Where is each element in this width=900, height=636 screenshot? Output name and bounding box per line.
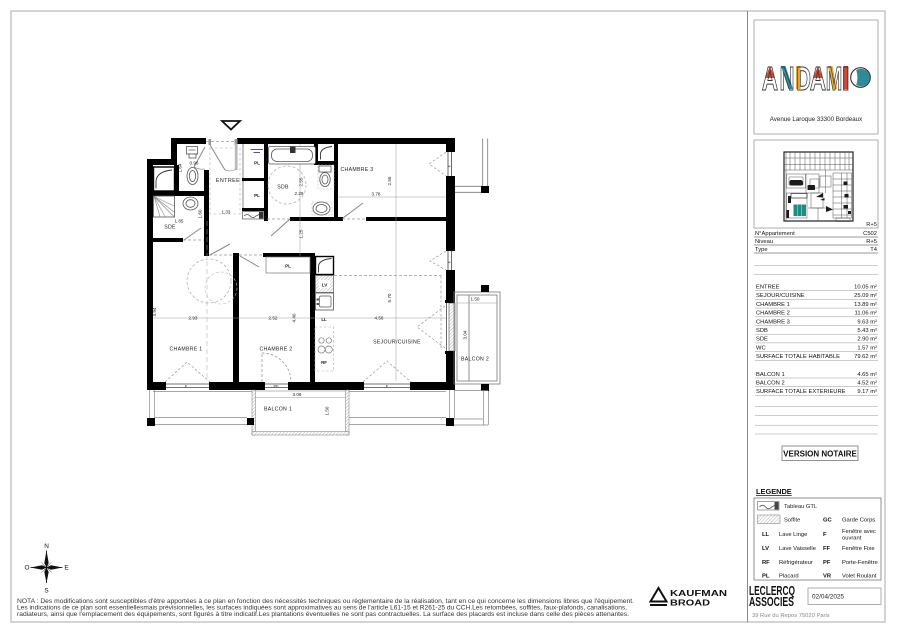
- svg-text:Fenêtre Fixe: Fenêtre Fixe: [842, 546, 875, 552]
- svg-text:CHAMBRE 1: CHAMBRE 1: [170, 347, 203, 353]
- svg-text:CHAMBRE 3: CHAMBRE 3: [341, 167, 374, 173]
- svg-text:LV: LV: [762, 546, 769, 552]
- svg-text:Porte-Fenêtre: Porte-Fenêtre: [842, 560, 878, 566]
- svg-text:02/04/2025: 02/04/2025: [812, 594, 844, 601]
- svg-text:4.94: 4.94: [152, 307, 157, 316]
- svg-text:SDB: SDB: [277, 185, 289, 191]
- svg-text:ENTREE: ENTREE: [216, 178, 240, 184]
- svg-text:BALCON 2: BALCON 2: [756, 381, 785, 387]
- svg-text:A: A: [810, 60, 826, 97]
- svg-text:RF: RF: [321, 360, 327, 365]
- svg-text:4.40: 4.40: [292, 313, 297, 322]
- svg-text:LL: LL: [321, 317, 327, 322]
- svg-text:CHAMBRE 2: CHAMBRE 2: [756, 311, 790, 317]
- svg-text:M: M: [826, 60, 842, 98]
- svg-text:Lave Vaisselle: Lave Vaisselle: [779, 546, 816, 552]
- svg-text:BALCON 2: BALCON 2: [461, 357, 489, 363]
- svg-text:radiateurs, ainsi que l'emplac: radiateurs, ainsi que l'emplacement des …: [17, 612, 629, 618]
- svg-text:R+5: R+5: [866, 222, 877, 228]
- svg-text:ASSOCIES: ASSOCIES: [749, 595, 794, 609]
- svg-text:CHAMBRE 3: CHAMBRE 3: [756, 319, 790, 325]
- svg-text:WC: WC: [756, 345, 766, 351]
- svg-text:Réfrigérateur: Réfrigérateur: [779, 560, 813, 566]
- svg-text:VERSION NOTAIRE: VERSION NOTAIRE: [783, 450, 857, 459]
- svg-text:T4: T4: [870, 247, 878, 253]
- svg-text:9.17 m²: 9.17 m²: [857, 389, 877, 395]
- svg-text:PF: PF: [823, 560, 831, 566]
- svg-text:Niveau: Niveau: [755, 239, 773, 245]
- svg-text:1.85: 1.85: [175, 219, 184, 224]
- svg-text:0.96: 0.96: [190, 161, 199, 166]
- svg-text:N°Appartement: N°Appartement: [755, 231, 795, 237]
- svg-text:25.09 m²: 25.09 m²: [854, 293, 877, 299]
- svg-text:Les indications de ce plan son: Les indications de ce plan sont essentie…: [17, 606, 627, 612]
- svg-text:Garde Corps: Garde Corps: [842, 518, 875, 524]
- svg-text:SDB: SDB: [756, 328, 768, 334]
- svg-text:Avenue Laroque 33300 Bordeaux: Avenue Laroque 33300 Bordeaux: [770, 116, 863, 123]
- svg-text:2.55: 2.55: [299, 177, 304, 186]
- svg-text:BALCON 1: BALCON 1: [264, 407, 292, 413]
- svg-text:13.89 m²: 13.89 m²: [854, 302, 877, 308]
- svg-text:SURFACE TOTALE EXTERIEURE: SURFACE TOTALE EXTERIEURE: [756, 389, 846, 395]
- svg-text:BROAD: BROAD: [670, 598, 710, 608]
- svg-text:CHAMBRE 1: CHAMBRE 1: [756, 302, 790, 308]
- svg-text:3.04: 3.04: [463, 330, 468, 339]
- svg-text:Tableau GTL: Tableau GTL: [784, 504, 818, 510]
- svg-text:R+5: R+5: [866, 239, 877, 245]
- svg-text:4.56: 4.56: [375, 316, 384, 321]
- svg-text:1.25: 1.25: [299, 229, 304, 238]
- svg-text:LEGENDE: LEGENDE: [756, 487, 792, 496]
- svg-text:LL: LL: [762, 532, 770, 538]
- svg-text:CHAMBRE 2: CHAMBRE 2: [260, 347, 293, 353]
- svg-text:10.05 m²: 10.05 m²: [854, 285, 877, 291]
- svg-text:1.33: 1.33: [222, 210, 231, 215]
- svg-text:O: O: [25, 565, 30, 572]
- svg-text:2.90 m²: 2.90 m²: [857, 337, 877, 343]
- svg-text:BALCON 1: BALCON 1: [756, 372, 785, 378]
- svg-text:N: N: [44, 543, 49, 550]
- svg-text:F: F: [447, 164, 452, 167]
- svg-text:5.70: 5.70: [387, 293, 392, 302]
- svg-text:1.64: 1.64: [178, 163, 183, 172]
- svg-text:GC: GC: [823, 518, 833, 524]
- svg-text:SDE: SDE: [164, 225, 176, 231]
- svg-text:Soffite: Soffite: [784, 518, 800, 524]
- svg-text:2.52: 2.52: [269, 316, 278, 321]
- svg-text:Lave Linge: Lave Linge: [779, 532, 807, 538]
- svg-text:PL: PL: [254, 161, 260, 166]
- svg-text:9.63 m²: 9.63 m²: [857, 319, 877, 325]
- svg-text:S: S: [44, 588, 48, 595]
- svg-text:SEJOUR/CUISINE: SEJOUR/CUISINE: [373, 340, 421, 346]
- svg-text:2.93: 2.93: [189, 316, 198, 321]
- svg-text:VR: VR: [823, 574, 832, 580]
- svg-text:11.06 m²: 11.06 m²: [855, 311, 878, 317]
- svg-text:ouvrant: ouvrant: [842, 536, 862, 542]
- svg-text:KAUFMAN: KAUFMAN: [670, 588, 727, 598]
- svg-text:Fenêtre avec: Fenêtre avec: [842, 529, 876, 535]
- svg-text:A: A: [762, 60, 778, 97]
- svg-text:F: F: [447, 260, 452, 263]
- svg-text:39 Rue du Repos 75020 Paris: 39 Rue du Repos 75020 Paris: [752, 613, 830, 619]
- svg-text:NOTA : Des modifications sont: NOTA : Des modifications sont susceptibl…: [17, 599, 634, 605]
- svg-text:4.65 m²: 4.65 m²: [857, 372, 877, 378]
- svg-text:1.50: 1.50: [325, 406, 330, 415]
- svg-text:RF: RF: [762, 560, 770, 566]
- svg-text:C502: C502: [863, 231, 877, 237]
- svg-text:SDE: SDE: [756, 337, 768, 343]
- svg-text:I: I: [842, 61, 850, 98]
- svg-text:Placard: Placard: [779, 574, 799, 580]
- svg-text:3.78: 3.78: [372, 192, 381, 197]
- svg-text:D: D: [796, 60, 811, 97]
- svg-text:Volet Roulant: Volet Roulant: [842, 574, 877, 580]
- svg-text:N: N: [780, 60, 795, 97]
- svg-text:PL: PL: [254, 193, 260, 198]
- svg-text:5.43 m²: 5.43 m²: [857, 328, 877, 334]
- svg-text:FF: FF: [823, 546, 831, 552]
- svg-text:SURFACE TOTALE HABITABLE: SURFACE TOTALE HABITABLE: [756, 354, 840, 360]
- svg-text:4.52 m²: 4.52 m²: [857, 381, 877, 387]
- svg-text:ENTREE: ENTREE: [756, 285, 780, 291]
- svg-text:2.29: 2.29: [295, 191, 304, 196]
- svg-text:1.50: 1.50: [471, 297, 480, 302]
- svg-text:1.57 m²: 1.57 m²: [857, 345, 877, 351]
- svg-text:PL: PL: [285, 264, 291, 269]
- svg-text:3.06: 3.06: [293, 392, 302, 397]
- svg-text:Type: Type: [755, 247, 768, 253]
- svg-text:2.55: 2.55: [387, 176, 392, 185]
- svg-text:1.60: 1.60: [198, 209, 203, 218]
- svg-text:PL: PL: [762, 574, 770, 580]
- svg-text:79.62 m²: 79.62 m²: [854, 354, 877, 360]
- svg-text:LV: LV: [322, 283, 328, 288]
- svg-text:PF: PF: [273, 384, 279, 389]
- svg-text:SEJOUR/CUISINE: SEJOUR/CUISINE: [756, 293, 805, 299]
- svg-text:E: E: [64, 565, 68, 572]
- svg-text:F: F: [823, 532, 827, 538]
